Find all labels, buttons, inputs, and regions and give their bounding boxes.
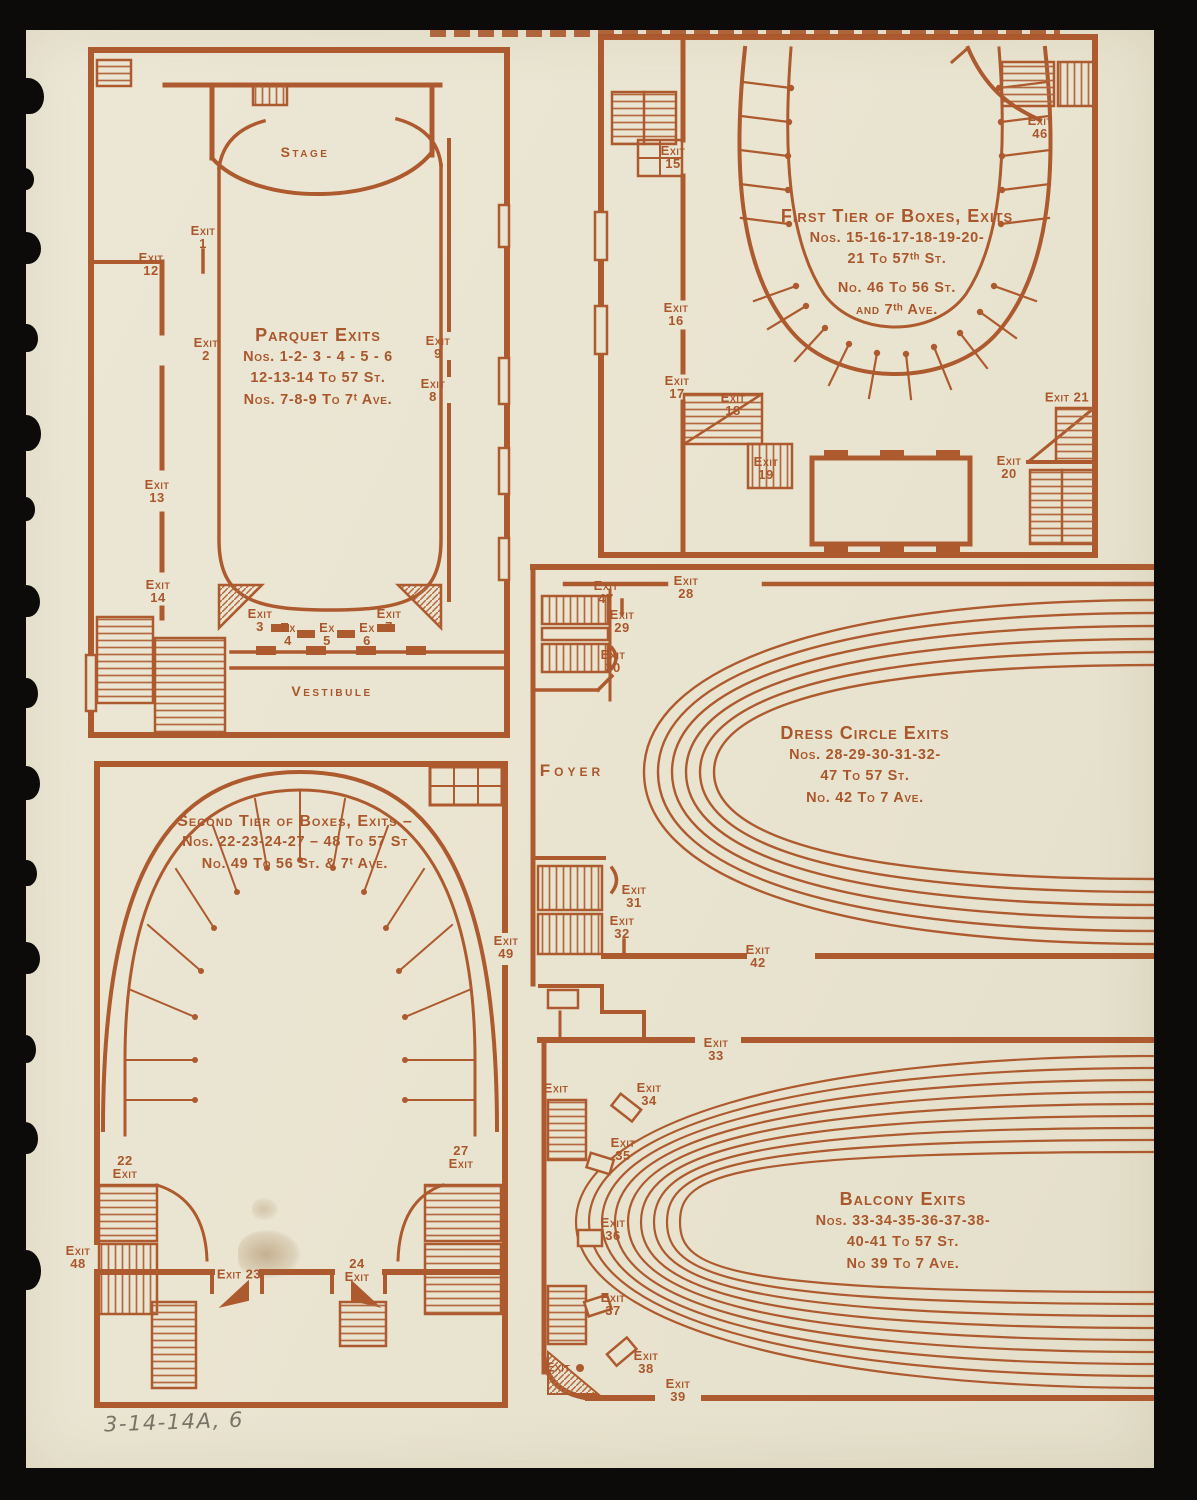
exit-label-6: Ex6 [359, 621, 375, 648]
exit-label-32: Exit32 [610, 914, 635, 941]
stage-label: Stage [281, 144, 330, 160]
exit-label-46: Exit46 [1028, 114, 1053, 141]
exit-label-33: Exit33 [704, 1036, 729, 1063]
exit-label-9: Exit9 [426, 334, 451, 361]
exit-label-27: 27Exit [449, 1144, 474, 1171]
exit-label-23: Exit 23 [217, 1267, 261, 1280]
torn-edge-hole [16, 678, 38, 708]
exit-label-17: Exit17 [665, 374, 690, 401]
first-tier-note: First Tier of Boxes, Exits Nos. 15-16-17… [781, 205, 1013, 322]
exit-label-19: Exit19 [754, 455, 779, 482]
exit-label-22: 22Exit [113, 1154, 138, 1181]
pencil-annotation: 3-14-14A, 6 [104, 1408, 245, 1437]
torn-edge-hole [17, 497, 35, 521]
exit-label-3: Exit3 [248, 607, 273, 634]
exit-plan-drawing [0, 0, 1197, 1500]
torn-edge-hole [17, 860, 37, 886]
torn-edge-hole [16, 1035, 36, 1063]
torn-edge-hole [14, 585, 40, 617]
exit-label-24: 24Exit [345, 1257, 370, 1284]
exit-label-18: Exit18 [721, 391, 746, 418]
foyer-label: Foyer [540, 761, 604, 781]
exit-label-4: Ex4 [280, 621, 296, 648]
exit-label-39: Exit39 [666, 1377, 691, 1404]
exit-label-7: Exit7 [377, 607, 402, 634]
torn-edge-hole [14, 1122, 38, 1154]
exit-label-1: Exit1 [191, 224, 216, 251]
tier-seats [192, 857, 408, 1103]
exit-label-14: Exit14 [146, 578, 171, 605]
exit-label-12: Exit12 [139, 251, 164, 278]
exit-label-47: Exit47 [594, 579, 619, 606]
exit-label-31: Exit31 [622, 883, 647, 910]
exit-label-30: Exit30 [601, 648, 626, 675]
dress-circle-note: Dress Circle Exits Nos. 28-29-30-31-32- … [780, 722, 949, 810]
exit-label-48: Exit48 [66, 1244, 91, 1271]
balcony-note: Balcony Exits Nos. 33-34-35-36-37-38- 40… [816, 1188, 991, 1276]
second-tier-note: Second Tier of Boxes, Exits – Nos. 22-23… [177, 812, 413, 876]
exit-label-2: Exit2 [194, 336, 219, 363]
exit-label-8: Exit8 [421, 377, 446, 404]
cutoff-header-fragment [430, 30, 1060, 37]
exit-label-42: Exit42 [746, 943, 771, 970]
exit-label-21: Exit 21 [1045, 390, 1089, 403]
scan-background: Stage Vestibule Parquet Exits Nos. 1-2- … [0, 0, 1197, 1500]
vestibule-label: Vestibule [291, 683, 372, 699]
exit-label-5: Ex5 [319, 621, 335, 648]
exit-label-36: Exit36 [601, 1216, 626, 1243]
torn-edge-hole [13, 1250, 41, 1290]
torn-edge-hole [13, 415, 41, 451]
scan-border-right [1154, 0, 1197, 1500]
torn-edge-hole [14, 78, 44, 114]
torn-edge-hole [16, 168, 34, 190]
exit-label-13: Exit13 [145, 478, 170, 505]
exit-label-28: Exit28 [674, 574, 699, 601]
exit-label-49: Exit49 [494, 934, 519, 961]
torn-edge-hole [14, 942, 40, 974]
paper-stain-small [252, 1198, 278, 1220]
exit-label-34: Exit34 [637, 1081, 662, 1108]
exit-label-side: Exit [544, 1081, 569, 1094]
exit-label-15: Exit15 [661, 144, 686, 171]
torn-edge-hole [14, 766, 40, 800]
exit-label-37: Exit37 [601, 1291, 626, 1318]
torn-edge-hole [16, 324, 38, 352]
exit-label-38: Exit38 [634, 1349, 659, 1376]
exit-label-20: Exit20 [997, 454, 1022, 481]
exit-label-35: Exit35 [611, 1136, 636, 1163]
scan-border-top [0, 0, 1197, 30]
scan-border-bottom [0, 1468, 1197, 1500]
exit-label-corner: Exit [546, 1360, 571, 1373]
torn-edge-hole [13, 232, 41, 264]
exit-label-16: Exit16 [664, 301, 689, 328]
parquet-exits-note: Parquet Exits Nos. 1-2- 3 - 4 - 5 - 6 12… [243, 324, 393, 412]
exit-label-29: Exit29 [610, 608, 635, 635]
